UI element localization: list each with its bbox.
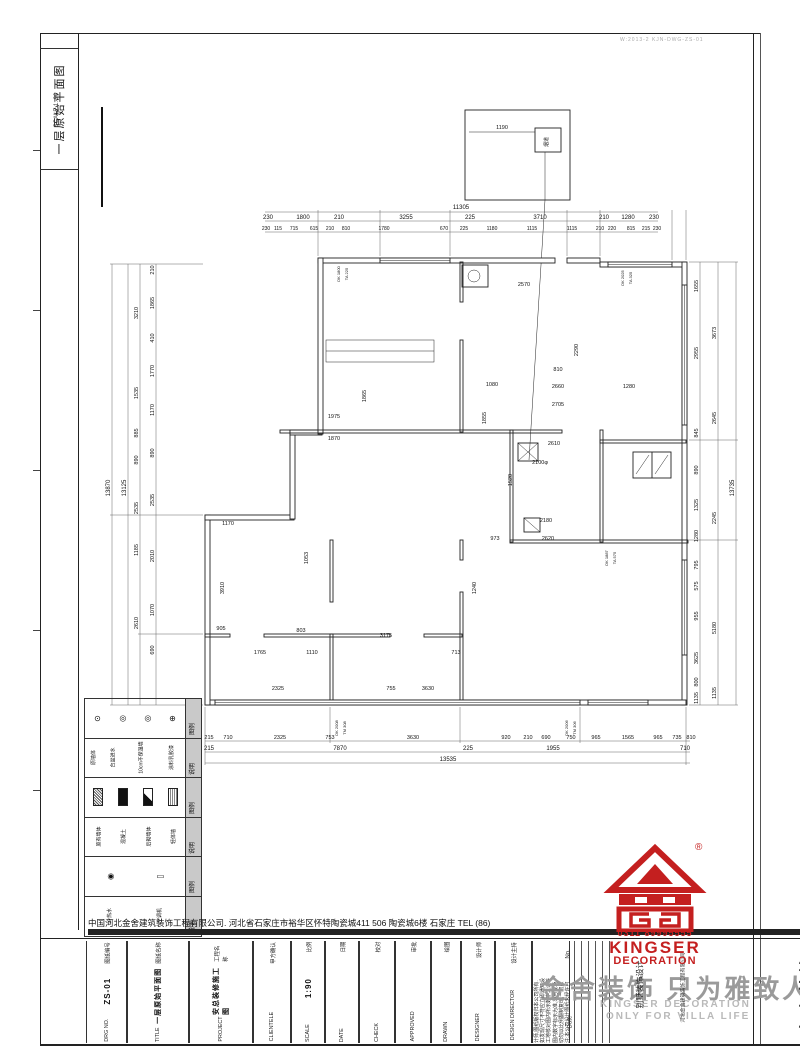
legend-item: 轻体墙 (170, 829, 177, 844)
dimension-label: TA 225 (344, 267, 349, 280)
dimension-label: 1520 (508, 474, 514, 486)
dimension-label: 5180 (712, 622, 718, 634)
legend-item: 原有墙体 (95, 827, 102, 847)
dimension-label: 890 (694, 465, 700, 474)
drawing-sheet: 一层原始平面图 SCALE 1: 90 W:2013-2 KJN-DWG-ZS-… (0, 0, 800, 1052)
dimension-label: 210 (326, 226, 335, 232)
dimension-label: 1080 (486, 382, 498, 388)
cell-en-label: DATE (339, 1028, 344, 1042)
cell-cn-label: 审批 (409, 942, 417, 953)
cell-en-label: APPROVED (410, 1011, 415, 1041)
dimension-label: 3625 (694, 652, 700, 664)
dimension-lines (110, 210, 738, 765)
dimension-label: 11305 (453, 205, 470, 211)
dimension-label: 920 (501, 735, 510, 741)
margin-tick (33, 310, 40, 311)
dimension-label: 803 (296, 628, 305, 634)
cell-cn-label: 设计师 (474, 942, 482, 958)
dimension-label: 1770 (150, 365, 156, 377)
titleblock-cell-approved: APPROVED审批 (394, 941, 432, 1043)
dimension-label: 2535 (134, 502, 140, 514)
logo-decoration-text: DECORATION (603, 955, 707, 967)
dimension-label: 965 (591, 735, 600, 741)
cell-cn-label: 甲方确认 (268, 942, 276, 964)
no-label: No. (566, 949, 572, 958)
dimension-label: 735 (672, 735, 681, 741)
legend-item: 混凝土 (120, 829, 127, 844)
dimension-label: 230 (262, 226, 271, 232)
dimension-label: 1800 (296, 215, 310, 221)
date-label: Date (567, 1016, 573, 1029)
dimension-label: 210 (334, 215, 345, 221)
dimension-label: 7870 (333, 746, 347, 752)
dimension-label: 2180 (540, 518, 552, 524)
titleblock-cell-title: TITLE一层原始平面图图纸名称 (126, 941, 190, 1043)
logo-phone: 0311 89995555 (609, 928, 701, 938)
dimension-label: 955 (694, 611, 700, 620)
titleblock-cell-design-director: DESIGN DIRECTOR设计主持 (494, 941, 532, 1043)
dimension-label: 2290 (574, 344, 580, 356)
dimension-label: 3710 (533, 215, 547, 221)
dimension-label: 1865 (150, 297, 156, 309)
dimension-label: 3630 (407, 735, 419, 741)
cell-en-label: DESIGN DIRECTOR (510, 990, 515, 1040)
dimension-label: 230 (263, 215, 274, 221)
dimension-label: 1170 (222, 521, 234, 527)
dimension-label: 1240 (472, 582, 478, 594)
dimension-label: 1135 (694, 692, 700, 704)
dimension-label: 1955 (546, 746, 560, 752)
dimension-label: 1535 (134, 387, 140, 399)
dimension-label: 215 (204, 746, 215, 752)
watermark-en2: ONLY FOR VILLA LIFE (606, 1011, 750, 1022)
dimension-label: 810 (553, 367, 562, 373)
cell-en-label: DRAWN (443, 1022, 448, 1042)
dimension-label: 713 (451, 650, 460, 656)
note-line: 计师,图纸版权归本公司所有. (533, 941, 538, 1043)
dimension-label: 1115 (527, 226, 538, 232)
dimension-label: 230 (649, 215, 660, 221)
dimension-label: 225 (460, 226, 469, 232)
dimension-label: 2620 (542, 536, 554, 542)
dimension-label: 690 (541, 735, 550, 741)
dimension-label: 2610 (134, 617, 140, 629)
cell-value: 一层原始平面图 (153, 968, 163, 1024)
dimension-label: 710 (223, 735, 232, 741)
legend-item: ⊕ (168, 715, 177, 722)
cell-value: 安总装修施工图 (211, 963, 231, 1015)
watermark-en1: KINGSER DECORATION (600, 999, 751, 1010)
dimension-label: DK 1800 (336, 265, 341, 281)
dimension-labels: 2301800210325522537102101280230230115715… (106, 125, 736, 763)
logo-name-vertical: 金舍装饰 (795, 952, 800, 1036)
dimension-label: 715 (290, 226, 299, 232)
dimension-label: 815 (627, 226, 636, 232)
dimension-label: 3175 (380, 633, 392, 639)
dimension-label: 1865 (362, 390, 368, 402)
legend-item: ▯ (156, 874, 165, 878)
plan-walls (205, 110, 688, 705)
titleblock-cell-project: PROJECT安总装修施工图工程名称 (188, 941, 254, 1043)
dimension-label: 2660 (552, 384, 564, 390)
border-right-outer (760, 33, 761, 1046)
dimension-label: 1170 (150, 404, 156, 416)
dimension-label: 210 (150, 265, 156, 274)
dimension-label: 710 (680, 746, 691, 752)
cell-cn-label: 工程名称 (213, 942, 229, 962)
dimension-label: 1655 (694, 280, 700, 292)
titleblock-cell-check: CHECK校对 (358, 941, 396, 1043)
titleblock-cell-drg-no-: DRG NO.ZS-01图纸编号 (86, 941, 128, 1043)
border-bottom (40, 1044, 800, 1046)
dimension-label: 410 (150, 333, 156, 342)
dimension-label: 795 (694, 560, 700, 569)
dimension-label: 1855 (482, 412, 488, 424)
dimension-label: 215 (642, 226, 651, 232)
dimension-label: 2645 (712, 412, 718, 424)
titleblock-cell-designer: DESIGNER设计师 (460, 941, 496, 1043)
dimension-label: TM 306 (572, 720, 577, 734)
dimension-label: 210 (596, 226, 605, 232)
dimension-label: 973 (490, 536, 499, 542)
cell-value: ZS-01 (103, 978, 112, 1005)
cell-en-label: DESIGNER (475, 1013, 480, 1041)
dimension-label: 890 (150, 448, 156, 457)
legend-band-desc2: 原有墙体混凝土后砌墙体轻体墙 说明 (85, 818, 201, 858)
titleblock-cell-drawn: DRAWN绘图 (430, 941, 462, 1043)
margin-tick (33, 150, 40, 151)
legend-item: ◎ (143, 715, 152, 722)
legend-item: ◎ (118, 715, 127, 722)
dimension-label: 575 (694, 581, 700, 590)
dimension-label: 210 (523, 735, 532, 741)
solid-swatch (118, 788, 128, 806)
dimension-label: 225 (465, 215, 476, 221)
dimension-label: 2705 (552, 402, 564, 408)
cell-en-label: DRG NO. (104, 1019, 109, 1042)
dimension-label: 890 (134, 455, 140, 464)
margin-tick (33, 470, 40, 471)
cell-en-label: CHECK (374, 1023, 379, 1042)
dimension-label: 2010 (150, 550, 156, 562)
kingser-logo: ® 0311 89995555 KINGSER DECORATION (603, 842, 707, 968)
dimension-label: 755 (386, 686, 395, 692)
border-left (40, 33, 41, 1046)
dimension-label: 1110 (306, 650, 317, 656)
dimension-label: 1135 (712, 687, 718, 699)
legend-item: 10cm不保温墙 (137, 742, 144, 774)
legend-band-symbols: ⊙◎◎⊕ 图例 (85, 699, 201, 739)
dimension-label: 1765 (254, 650, 266, 656)
cell-cn-label: 设计主持 (509, 942, 517, 964)
dimension-label: 215 (204, 735, 213, 741)
registered-mark: ® (695, 842, 702, 853)
plot-path-note: W:2013-2 KJN-DWG-ZS-01 (620, 37, 704, 43)
dimension-label: 210 (599, 215, 610, 221)
cell-cn-label: 图纸名称 (154, 942, 162, 964)
dimension-label: 230 (653, 226, 662, 232)
cell-cn-label: 绘图 (442, 942, 450, 953)
dimension-label: 13535 (440, 757, 457, 763)
cell-en-label: SCALE (305, 1024, 310, 1042)
stripe-swatch (168, 788, 178, 806)
dimension-label: 1280 (694, 530, 700, 542)
dimension-label: 13125 (122, 479, 128, 496)
dimension-label: DK 1887 (604, 549, 609, 565)
dimension-label: 1975 (328, 414, 340, 420)
legend-band-desc: 原墙体台盆进水10cm不保温墙涂料乳胶漆 说明 (85, 739, 201, 779)
dimension-label: TA 325 (628, 271, 633, 284)
dimension-label: 13735 (730, 479, 736, 496)
legend-item: 台盆进水 (109, 748, 116, 768)
dimension-label: 2325 (272, 686, 284, 692)
dimension-label: 1115 (567, 226, 578, 232)
legend-table: ⊙◎◎⊕ 图例 原墙体台盆进水10cm不保温墙涂料乳胶漆 说明 图例 原有墙体混… (84, 698, 202, 937)
dimension-label: 220 (608, 226, 617, 232)
dimension-label: 1053 (304, 552, 310, 564)
dimension-label: DK 2006 (564, 719, 569, 735)
dimension-label: 1565 (622, 735, 634, 741)
dimension-label: 810 (686, 735, 695, 741)
dimension-label: 1325 (694, 499, 700, 511)
cell-en-label: CLIENTELE (269, 1012, 274, 1041)
dimension-label: 2610 (548, 441, 560, 447)
legend-item: ⊙ (93, 715, 102, 722)
titleblock-cell-date: DATE日期 (324, 941, 360, 1043)
dimension-label: 1280 (621, 215, 635, 221)
dimension-label: 845 (694, 428, 700, 437)
dimension-label: 烟道 (543, 137, 550, 147)
hatch-swatch (93, 788, 103, 806)
dimension-label: 885 (134, 428, 140, 437)
dimension-label: 3630 (422, 686, 434, 692)
dimension-label: 2100φ (532, 460, 548, 466)
cell-en-label: TITLE (155, 1027, 160, 1042)
dimension-label: 2955 (694, 347, 700, 359)
legend-band-symbols2: ◉▯ 图例 (85, 857, 201, 897)
half-swatch (143, 788, 153, 806)
dimension-label: 690 (150, 645, 156, 654)
dimension-label: 965 (653, 735, 662, 741)
dimension-label: 2570 (518, 282, 530, 288)
sheet-scale-vertical: SCALE 1: 90 (54, 65, 64, 155)
margin-tick (33, 630, 40, 631)
legend-item: 后砌墙体 (145, 827, 152, 847)
dimension-label: 905 (216, 626, 225, 632)
cell-en-label: PROJECT (218, 1016, 223, 1041)
dimension-label: 1780 (378, 226, 389, 232)
legend-band-patterns: 图例 (85, 778, 201, 818)
dimension-label: 1180 (487, 226, 498, 232)
dimension-label: 2245 (712, 512, 718, 524)
titleblock-cell-clientele: CLIENTELE甲方确认 (252, 941, 292, 1043)
dimension-label: 3910 (220, 582, 226, 594)
legend-item: ◉ (106, 873, 115, 880)
dimension-label: 2535 (150, 494, 156, 506)
cell-cn-label: 日期 (338, 942, 346, 953)
dimension-label: 3210 (134, 307, 140, 319)
dimension-label: 13870 (106, 479, 112, 496)
cell-cn-label: 校对 (373, 942, 381, 953)
dimension-label: 115 (274, 226, 282, 232)
dimension-label: 810 (342, 226, 351, 232)
dimension-label: DK 2008 (334, 719, 339, 735)
dimension-label: 1185 (134, 544, 140, 556)
margin-tick (33, 790, 40, 791)
titleblock-cell-scale: SCALE1:90比例 (290, 941, 326, 1043)
dimension-label: TA 575 (612, 551, 617, 564)
dimension-label: 3255 (399, 215, 413, 221)
legend-item: 涂料乳胶漆 (168, 745, 175, 770)
border-top (40, 33, 760, 34)
dimension-label: 670 (440, 226, 449, 232)
sheet-title-box: 一层原始平面图 SCALE 1: 90 (40, 48, 78, 170)
strip-divider (78, 33, 79, 930)
dimension-label: 1870 (328, 436, 340, 442)
dimension-label: 2325 (274, 735, 286, 741)
dimension-label: 1280 (623, 384, 635, 390)
cell-cn-label: 比例 (304, 942, 312, 953)
dimension-label: 800 (694, 677, 700, 686)
dimension-label: DK 2025 (620, 269, 625, 285)
dimension-label: 225 (463, 746, 474, 752)
cell-cn-label: 图纸编号 (103, 942, 111, 964)
dimension-label: 1190 (496, 125, 508, 131)
dimension-label: 3673 (712, 327, 718, 339)
dimension-label: TM 308 (342, 720, 347, 734)
cell-value: 1:90 (304, 978, 313, 998)
dimension-label: 615 (310, 226, 319, 232)
legend-item: 原墙体 (90, 750, 97, 765)
dimension-label: 1070 (150, 604, 156, 616)
